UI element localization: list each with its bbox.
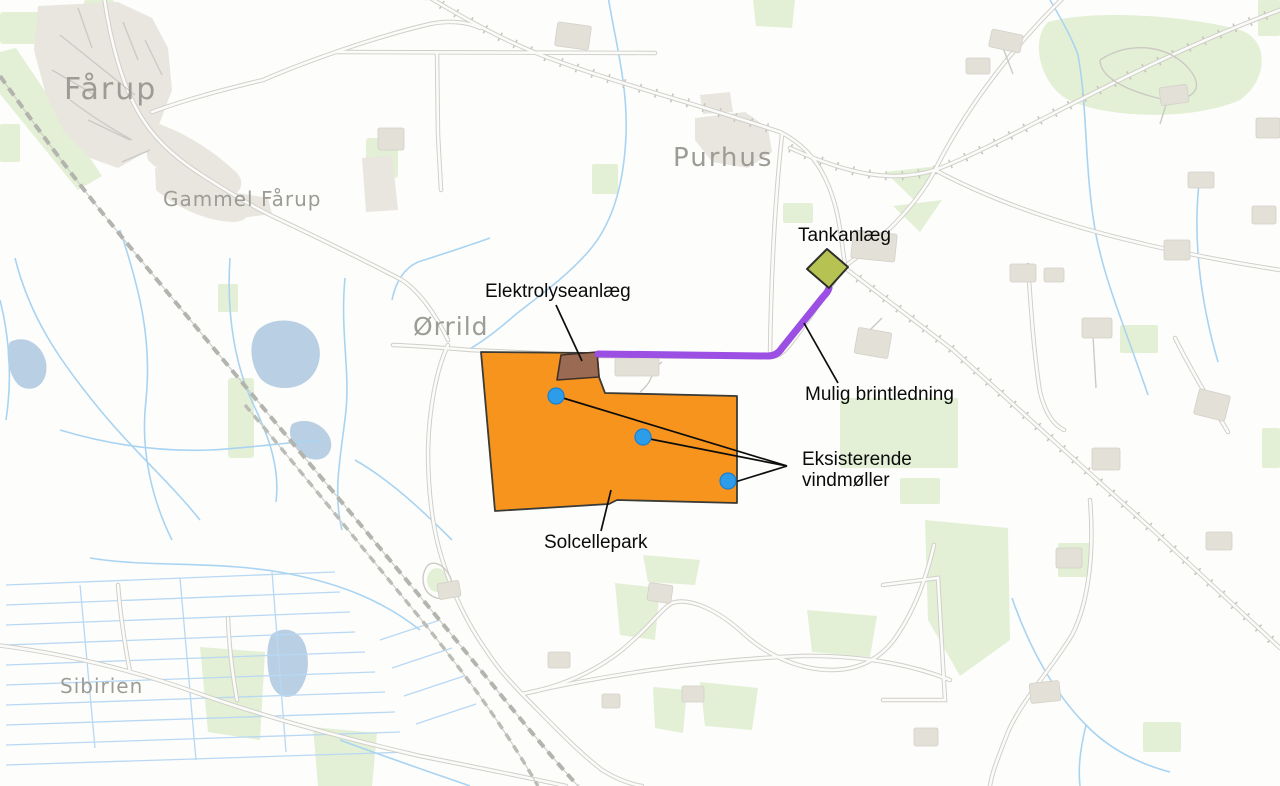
wind-turbines-label: Eksisterende vindmøller bbox=[802, 449, 912, 491]
base-map bbox=[0, 0, 1280, 786]
place-label-purhus: Purhus bbox=[673, 145, 773, 172]
electrolysis-plant-label: Elektrolyseanlæg bbox=[485, 282, 631, 302]
wind-turbine-dot-2 bbox=[635, 429, 651, 445]
tank-facility-label: Tankanlæg bbox=[798, 226, 891, 246]
place-label-faarup: Fårup bbox=[64, 74, 157, 106]
place-label-sibirien: Sibirien bbox=[60, 676, 143, 697]
wind-turbines-label-line2: vindmøller bbox=[802, 470, 912, 491]
electrolysis-plant-rect bbox=[557, 352, 599, 380]
wind-turbine-dot-1 bbox=[548, 388, 564, 404]
map-figure: Fårup Gammel Fårup Purhus Ørrild Sibirie… bbox=[0, 0, 1280, 786]
place-label-oerrild: Ørrild bbox=[413, 314, 489, 340]
place-label-gammel-faarup: Gammel Fårup bbox=[163, 189, 321, 210]
hydrogen-pipeline-label: Mulig brintledning bbox=[805, 385, 954, 405]
wind-turbine-dot-3 bbox=[720, 473, 736, 489]
wind-turbines-label-line1: Eksisterende bbox=[802, 449, 912, 470]
solar-park-label: Solcellepark bbox=[544, 533, 648, 553]
